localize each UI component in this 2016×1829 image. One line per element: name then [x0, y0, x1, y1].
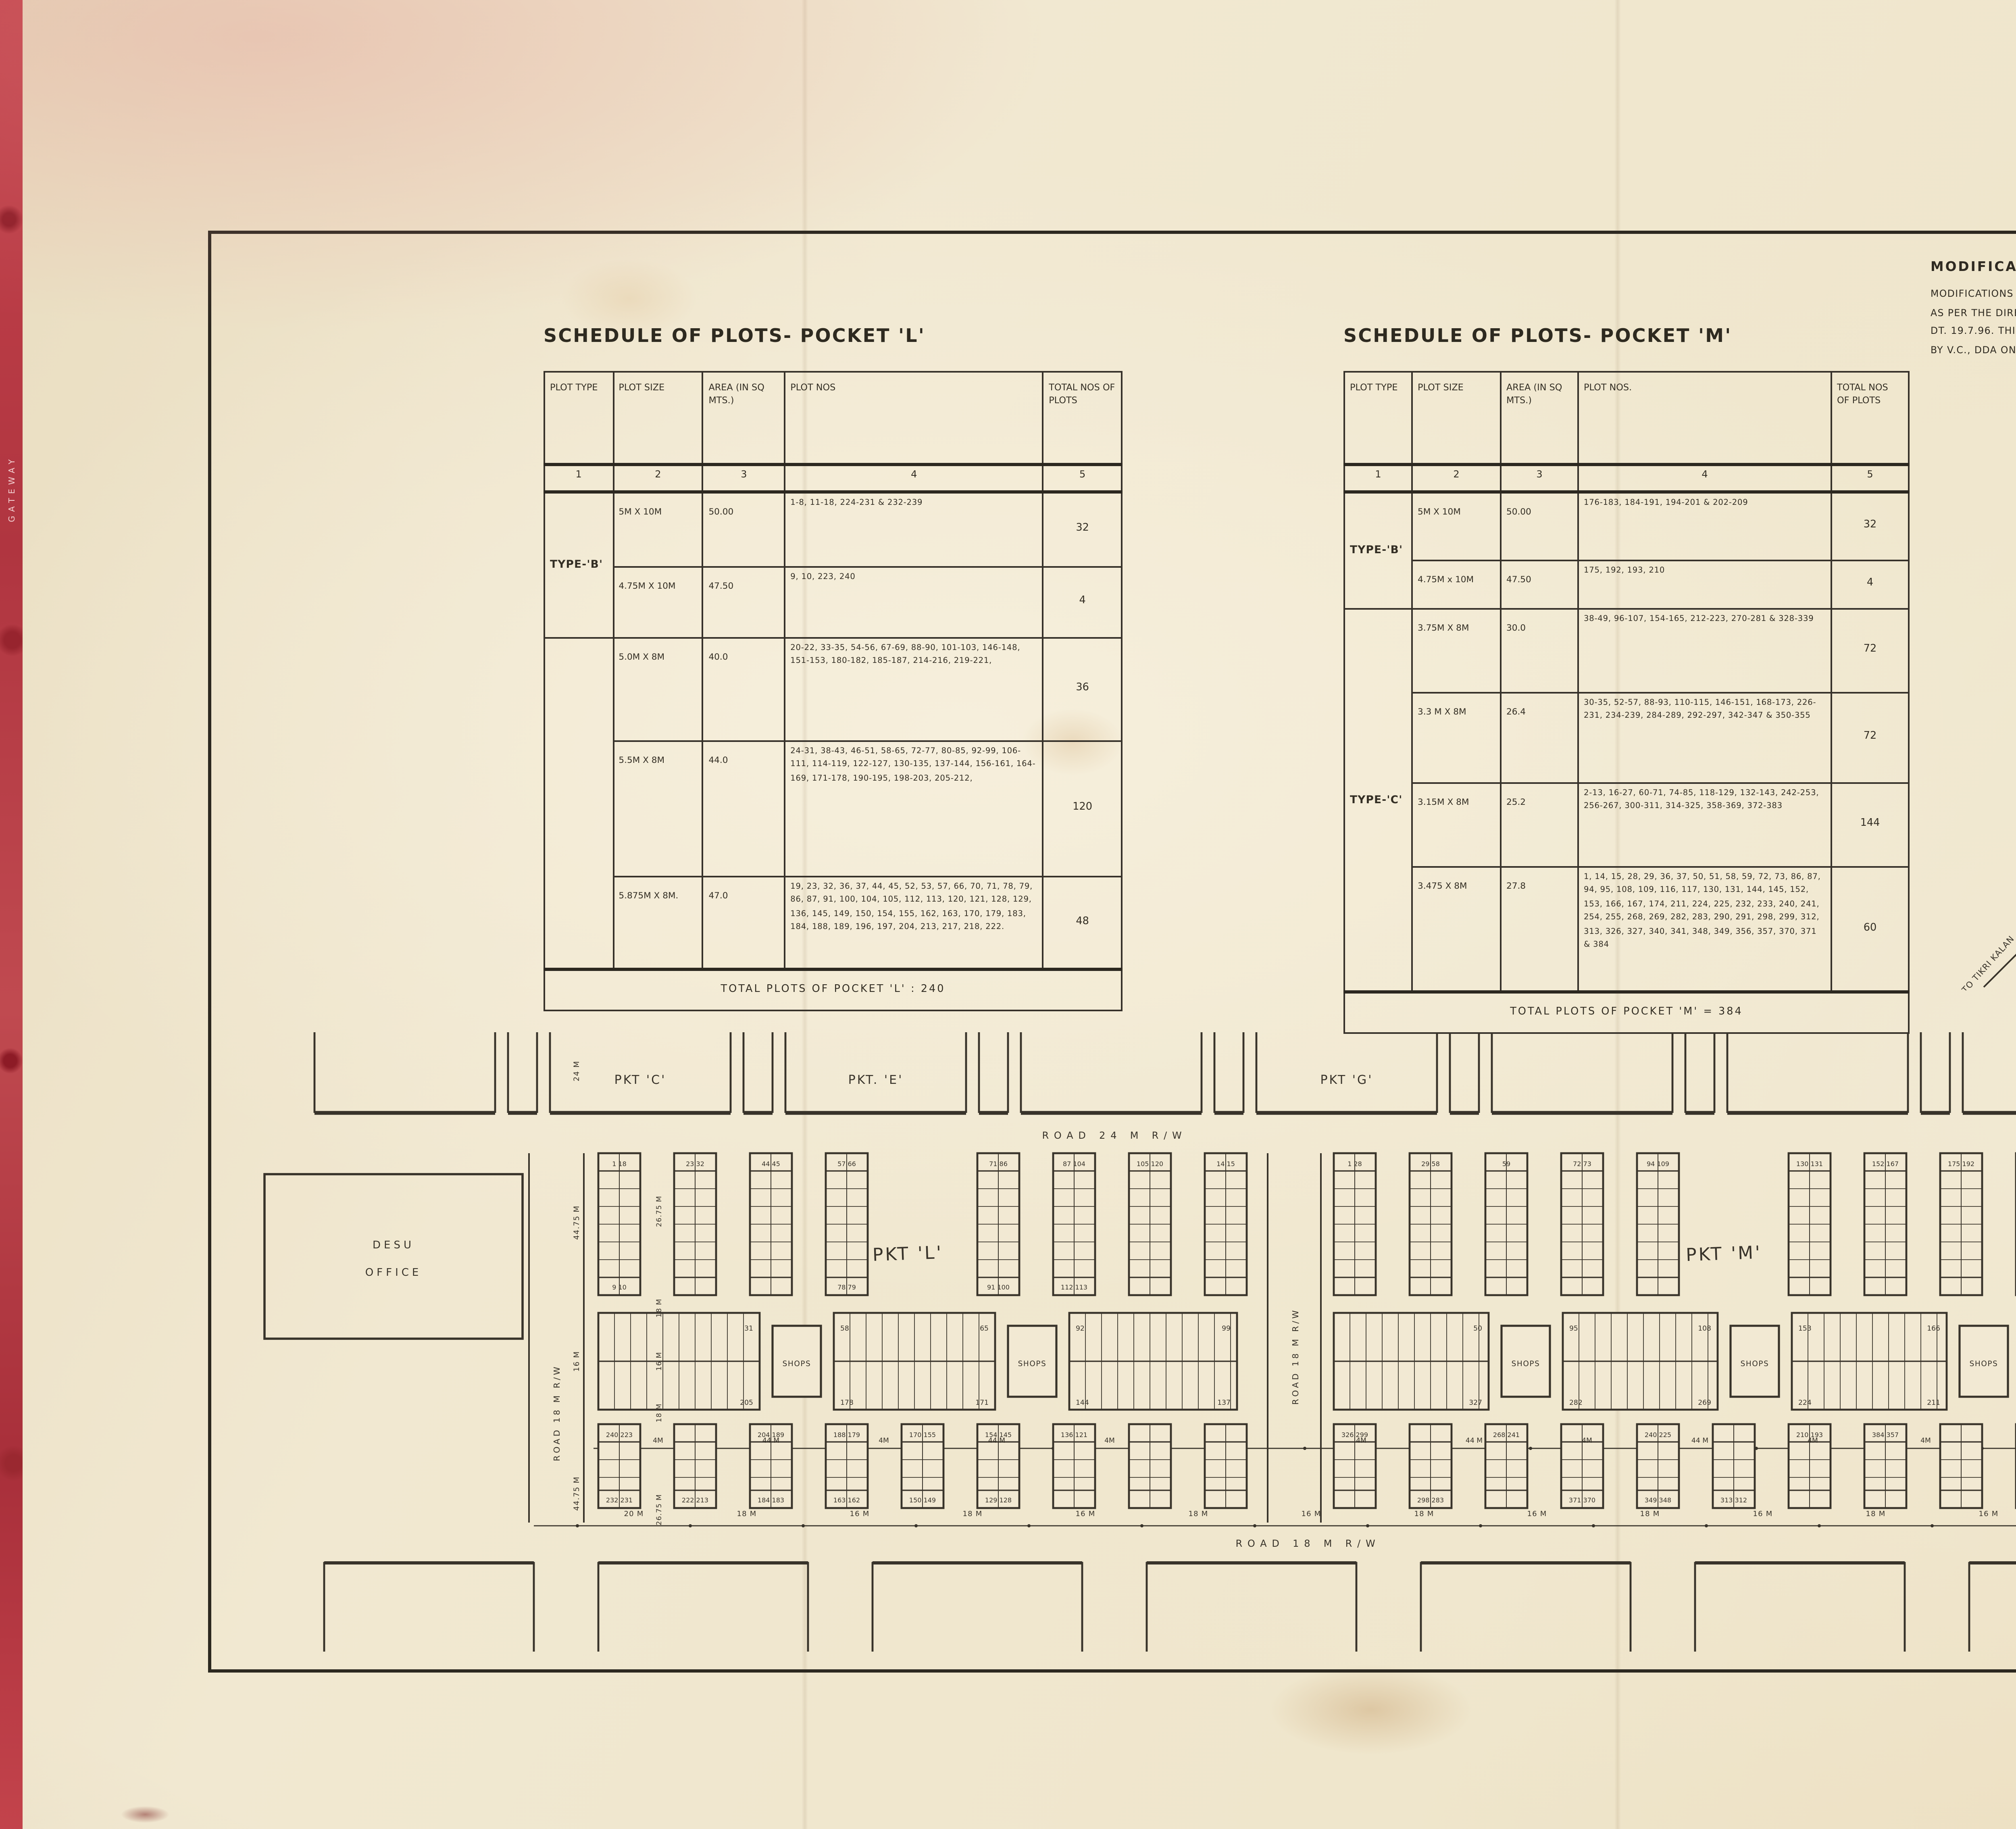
col-num: 1	[544, 465, 613, 492]
svg-text:44.75 M: 44.75 M	[573, 1476, 581, 1511]
svg-text:112 113: 112 113	[1061, 1283, 1087, 1291]
plot-area: 27.8	[1501, 866, 1578, 992]
desu-office-block: DESUOFFICE	[264, 1174, 523, 1339]
svg-text:92: 92	[1076, 1325, 1085, 1333]
svg-text:58: 58	[840, 1325, 849, 1333]
svg-text:ROAD 18 M R/W: ROAD 18 M R/W	[552, 1364, 562, 1461]
svg-text:PKT 'G': PKT 'G'	[1320, 1073, 1373, 1087]
svg-text:163 162: 163 162	[833, 1496, 860, 1504]
plot-size: 5.0M X 8M	[613, 637, 703, 740]
col-num: 2	[1412, 465, 1501, 492]
col-num: 3	[1501, 465, 1578, 492]
svg-text:SHOPS: SHOPS	[783, 1360, 811, 1368]
col-header: TOTAL NOS OF PLOTS	[1831, 372, 1909, 465]
col-num: 2	[613, 465, 703, 492]
svg-text:240 225: 240 225	[1645, 1431, 1671, 1439]
svg-text:269: 269	[1698, 1399, 1711, 1407]
svg-text:44 M: 44 M	[1691, 1437, 1708, 1445]
svg-text:SHOPS: SHOPS	[1741, 1360, 1769, 1368]
modifications-line: AS PER THE DIRECTIONS OF L.G. DT. 20.6.9…	[1931, 306, 2016, 324]
plot-size: 4.75M X 10M	[613, 566, 703, 637]
svg-text:PKT 'M': PKT 'M'	[1685, 1242, 1762, 1266]
svg-text:65: 65	[980, 1325, 989, 1333]
svg-text:282: 282	[1569, 1399, 1583, 1407]
plot-area: 47.0	[703, 876, 785, 969]
col-num: 1	[1344, 465, 1412, 492]
svg-text:188 179: 188 179	[833, 1431, 860, 1439]
svg-text:DESU: DESU	[373, 1239, 414, 1251]
svg-text:16 M: 16 M	[1753, 1510, 1773, 1518]
plot-nos: 2-13, 16-27, 60-71, 74-85, 118-129, 132-…	[1578, 782, 1831, 866]
modifications-line: BY V.C., DDA ON 2.8.96 ON FILE F 100(35)…	[1931, 343, 2016, 361]
svg-text:268 241: 268 241	[1493, 1431, 1520, 1439]
col-header: AREA (IN SQ MTS.)	[1501, 372, 1578, 465]
svg-text:44 M: 44 M	[988, 1437, 1005, 1445]
col-header: PLOT NOS	[785, 372, 1043, 465]
plot-size: 3.475 X 8M	[1412, 866, 1501, 992]
svg-text:18 M: 18 M	[655, 1299, 663, 1318]
col-header: AREA (IN SQ MTS.)	[703, 372, 785, 465]
svg-text:SHOPS: SHOPS	[1018, 1360, 1047, 1368]
plan-top-pockets: PKT 'C'PKT. 'E'PKT 'G'PKT 'I'	[314, 1032, 2016, 1113]
plot-type-cell: TYPE-'B'	[544, 492, 613, 637]
plot-area: 26.4	[1501, 692, 1578, 782]
plot-type-cell	[544, 637, 613, 969]
svg-text:4M: 4M	[1356, 1437, 1366, 1445]
plot-total: 32	[1043, 492, 1122, 566]
plot-total: 48	[1043, 876, 1122, 969]
svg-text:4M: 4M	[653, 1437, 663, 1445]
svg-text:ROAD 24 M R/W: ROAD 24 M R/W	[1042, 1130, 1187, 1141]
svg-text:29 58: 29 58	[1421, 1160, 1440, 1168]
plot-nos: 19, 23, 32, 36, 37, 44, 45, 52, 53, 57, …	[785, 876, 1043, 969]
svg-text:144: 144	[1076, 1399, 1089, 1407]
svg-text:384 357: 384 357	[1872, 1431, 1899, 1439]
svg-text:16 M: 16 M	[1302, 1510, 1321, 1518]
svg-text:170 155: 170 155	[909, 1431, 936, 1439]
modifications-heading: MODIFICATIONS:	[1931, 255, 2016, 281]
svg-text:44 M: 44 M	[762, 1437, 779, 1445]
svg-text:137: 137	[1217, 1399, 1231, 1407]
svg-text:1 18: 1 18	[612, 1160, 627, 1168]
plot-size: 3.75M X 8M	[1412, 608, 1501, 692]
svg-text:150 149: 150 149	[909, 1496, 936, 1504]
svg-text:349 348: 349 348	[1645, 1496, 1671, 1504]
dimension-plan: PKT 'C'PKT. 'E'PKT 'G'PKT 'I'ROAD 24 M R…	[211, 1010, 2016, 1664]
svg-text:26.75 M: 26.75 M	[655, 1196, 663, 1227]
plot-nos: 38-49, 96-107, 154-165, 212-223, 270-281…	[1578, 608, 1831, 692]
shops-row: 31205SHOPS5865178171SHOPS929914413750327…	[598, 1313, 2016, 1410]
key-plan-drawing: TO ROHTAK ROADTO TIKRI KALANACEGILMNKEY …	[1960, 506, 2016, 990]
svg-text:136 121: 136 121	[1061, 1431, 1087, 1439]
svg-text:31: 31	[744, 1325, 753, 1333]
col-header: PLOT SIZE	[613, 372, 703, 465]
svg-text:4M: 4M	[1582, 1437, 1592, 1445]
col-header: PLOT NOS.	[1578, 372, 1831, 465]
plot-type-cell: TYPE-'B'	[1344, 492, 1412, 608]
svg-text:232 231: 232 231	[606, 1496, 633, 1504]
svg-text:4M: 4M	[1920, 1437, 1931, 1445]
svg-text:18 M: 18 M	[963, 1510, 983, 1518]
svg-text:18 M: 18 M	[737, 1510, 757, 1518]
svg-text:4M: 4M	[1808, 1437, 1818, 1445]
svg-text:224: 224	[1798, 1399, 1812, 1407]
svg-text:44.75 M: 44.75 M	[573, 1205, 581, 1240]
drawing-sheet-scan: GATEWAY SCHEDULE OF PLOTS- POCKET 'L' PL…	[0, 0, 2016, 1829]
svg-text:94 109: 94 109	[1647, 1160, 1669, 1168]
svg-text:205: 205	[740, 1399, 753, 1407]
svg-text:129 128: 129 128	[985, 1496, 1012, 1504]
svg-text:153: 153	[1798, 1325, 1812, 1333]
svg-text:59: 59	[1502, 1160, 1510, 1168]
schedule-m-title: SCHEDULE OF PLOTS- POCKET 'M'	[1343, 324, 1732, 347]
plot-nos: 30-35, 52-57, 88-93, 110-115, 146-151, 1…	[1578, 692, 1831, 782]
schedule-l-title: SCHEDULE OF PLOTS- POCKET 'L'	[544, 324, 925, 347]
plot-area: 47.50	[1501, 560, 1578, 608]
svg-text:44 M: 44 M	[1466, 1437, 1483, 1445]
plot-area: 30.0	[1501, 608, 1578, 692]
plot-type-cell: TYPE-'C'	[1344, 608, 1412, 992]
svg-text:87 104: 87 104	[1063, 1160, 1085, 1168]
stain	[113, 1803, 177, 1826]
svg-text:16 M: 16 M	[573, 1351, 581, 1372]
svg-text:18 M: 18 M	[1640, 1510, 1660, 1518]
plot-nos: 20-22, 33-35, 54-56, 67-69, 88-90, 101-1…	[785, 637, 1043, 740]
plot-area: 25.2	[1501, 782, 1578, 866]
col-num: 5	[1831, 465, 1909, 492]
schedule-m-table: PLOT TYPE PLOT SIZE AREA (IN SQ MTS.) PL…	[1343, 371, 1910, 1034]
svg-text:105 120: 105 120	[1137, 1160, 1163, 1168]
schedule-l-total: TOTAL PLOTS OF POCKET 'L' : 240	[544, 969, 1122, 1010]
svg-text:171: 171	[975, 1399, 989, 1407]
svg-text:24 M: 24 M	[573, 1060, 581, 1081]
plot-size: 5M X 10M	[613, 492, 703, 566]
plot-total: 120	[1043, 740, 1122, 876]
plot-area: 40.0	[703, 637, 785, 740]
svg-text:ROAD 18 M R/W: ROAD 18 M R/W	[1235, 1538, 1380, 1549]
plot-size: 3.15M X 8M	[1412, 782, 1501, 866]
col-num: 3	[703, 465, 785, 492]
svg-text:71 86: 71 86	[989, 1160, 1008, 1168]
svg-text:99: 99	[1222, 1325, 1231, 1333]
col-num: 4	[785, 465, 1043, 492]
col-num: 4	[1578, 465, 1831, 492]
plot-area: 44.0	[703, 740, 785, 876]
plot-total: 4	[1043, 566, 1122, 637]
plot-size: 5M X 10M	[1412, 492, 1501, 560]
svg-text:240 223: 240 223	[606, 1431, 633, 1439]
col-header: PLOT TYPE	[1344, 372, 1412, 465]
svg-text:175 192: 175 192	[1948, 1160, 1974, 1168]
plot-size: 3.3 M X 8M	[1412, 692, 1501, 782]
modifications-line: MODIFICATIONS IN THE PLOT SIZES HAS BEEN…	[1931, 287, 2016, 306]
svg-text:298 283: 298 283	[1417, 1496, 1444, 1504]
svg-text:4M: 4M	[879, 1437, 889, 1445]
svg-text:327: 327	[1469, 1399, 1482, 1407]
col-num: 5	[1043, 465, 1122, 492]
svg-text:211: 211	[1927, 1399, 1940, 1407]
col-header: TOTAL NOS OF PLOTS	[1043, 372, 1122, 465]
plot-area: 50.00	[1501, 492, 1578, 560]
plot-nos: 176-183, 184-191, 194-201 & 202-209	[1578, 492, 1831, 560]
svg-text:91 100: 91 100	[987, 1283, 1010, 1291]
svg-text:PKT. 'E': PKT. 'E'	[848, 1073, 904, 1087]
svg-text:OFFICE: OFFICE	[365, 1267, 422, 1279]
modifications-note: MODIFICATIONS: MODIFICATIONS IN THE PLOT…	[1931, 255, 2016, 361]
plot-area: 50.00	[703, 492, 785, 566]
left-edge-print: GATEWAY	[8, 440, 18, 537]
plot-size: 4.75M x 10M	[1412, 560, 1501, 608]
plot-nos: 24-31, 38-43, 46-51, 58-65, 72-77, 80-85…	[785, 740, 1043, 876]
svg-text:16 M: 16 M	[1527, 1510, 1547, 1518]
svg-text:130 131: 130 131	[1796, 1160, 1823, 1168]
svg-text:20 M: 20 M	[624, 1510, 644, 1518]
svg-text:4M: 4M	[1104, 1437, 1115, 1445]
svg-text:371 370: 371 370	[1569, 1496, 1595, 1504]
binding-edge-left: GATEWAY	[0, 0, 23, 1829]
svg-text:184 183: 184 183	[758, 1496, 784, 1504]
svg-text:72 73: 72 73	[1573, 1160, 1591, 1168]
plot-nos: 1, 14, 15, 28, 29, 36, 37, 50, 51, 58, 5…	[1578, 866, 1831, 992]
svg-text:9 10: 9 10	[612, 1283, 627, 1291]
svg-text:313 312: 313 312	[1720, 1496, 1747, 1504]
svg-text:152 167: 152 167	[1872, 1160, 1899, 1168]
svg-text:178: 178	[840, 1399, 854, 1407]
svg-text:SHOPS: SHOPS	[1512, 1360, 1540, 1368]
svg-text:26.75 M: 26.75 M	[655, 1494, 663, 1525]
svg-text:23 32: 23 32	[686, 1160, 704, 1168]
svg-text:16 M: 16 M	[1076, 1510, 1095, 1518]
plot-nos: 9, 10, 223, 240	[785, 566, 1043, 637]
svg-text:18 M: 18 M	[1866, 1510, 1886, 1518]
plot-nos: 1-8, 11-18, 224-231 & 232-239	[785, 492, 1043, 566]
col-header: PLOT SIZE	[1412, 372, 1501, 465]
svg-text:16 M: 16 M	[850, 1510, 870, 1518]
svg-text:108: 108	[1698, 1325, 1711, 1333]
schedule-l-table: PLOT TYPE PLOT SIZE AREA (IN SQ MTS.) PL…	[544, 371, 1123, 1011]
plot-size: 5.5M X 8M	[613, 740, 703, 876]
svg-text:PKT 'L': PKT 'L'	[872, 1242, 943, 1265]
svg-text:16 M: 16 M	[1979, 1510, 1999, 1518]
svg-text:14 15: 14 15	[1216, 1160, 1235, 1168]
modifications-line: DT. 19.7.96. THIS MODIFIED PLAN HAS BEEN…	[1931, 324, 2016, 343]
svg-text:57 66: 57 66	[837, 1160, 856, 1168]
plot-area: 47.50	[703, 566, 785, 637]
svg-text:222 213: 222 213	[682, 1496, 708, 1504]
plot-nos: 175, 192, 193, 210	[1578, 560, 1831, 608]
svg-text:50: 50	[1473, 1325, 1482, 1333]
plan-bottom-blocks	[324, 1563, 2016, 1652]
svg-text:78 79: 78 79	[837, 1283, 856, 1291]
svg-text:SHOPS: SHOPS	[1970, 1360, 1998, 1368]
svg-text:18 M: 18 M	[655, 1404, 663, 1423]
svg-text:1 28: 1 28	[1347, 1160, 1362, 1168]
key-plan: TO ROHTAK ROADTO TIKRI KALANACEGILMNKEY …	[1890, 503, 2016, 990]
svg-text:ROAD 18 M R/W: ROAD 18 M R/W	[1291, 1308, 1300, 1405]
svg-text:18 M: 18 M	[1189, 1510, 1208, 1518]
svg-text:95: 95	[1569, 1325, 1578, 1333]
svg-text:166: 166	[1927, 1325, 1940, 1333]
plot-size: 5.875M X 8M.	[613, 876, 703, 969]
col-header: PLOT TYPE	[544, 372, 613, 465]
svg-text:PKT 'C': PKT 'C'	[614, 1073, 666, 1087]
svg-text:18 M: 18 M	[1414, 1510, 1434, 1518]
paper-sheet: GATEWAY SCHEDULE OF PLOTS- POCKET 'L' PL…	[0, 0, 2016, 1829]
plot-total: 36	[1043, 637, 1122, 740]
svg-text:16 M: 16 M	[655, 1352, 663, 1371]
svg-text:44 45: 44 45	[762, 1160, 780, 1168]
